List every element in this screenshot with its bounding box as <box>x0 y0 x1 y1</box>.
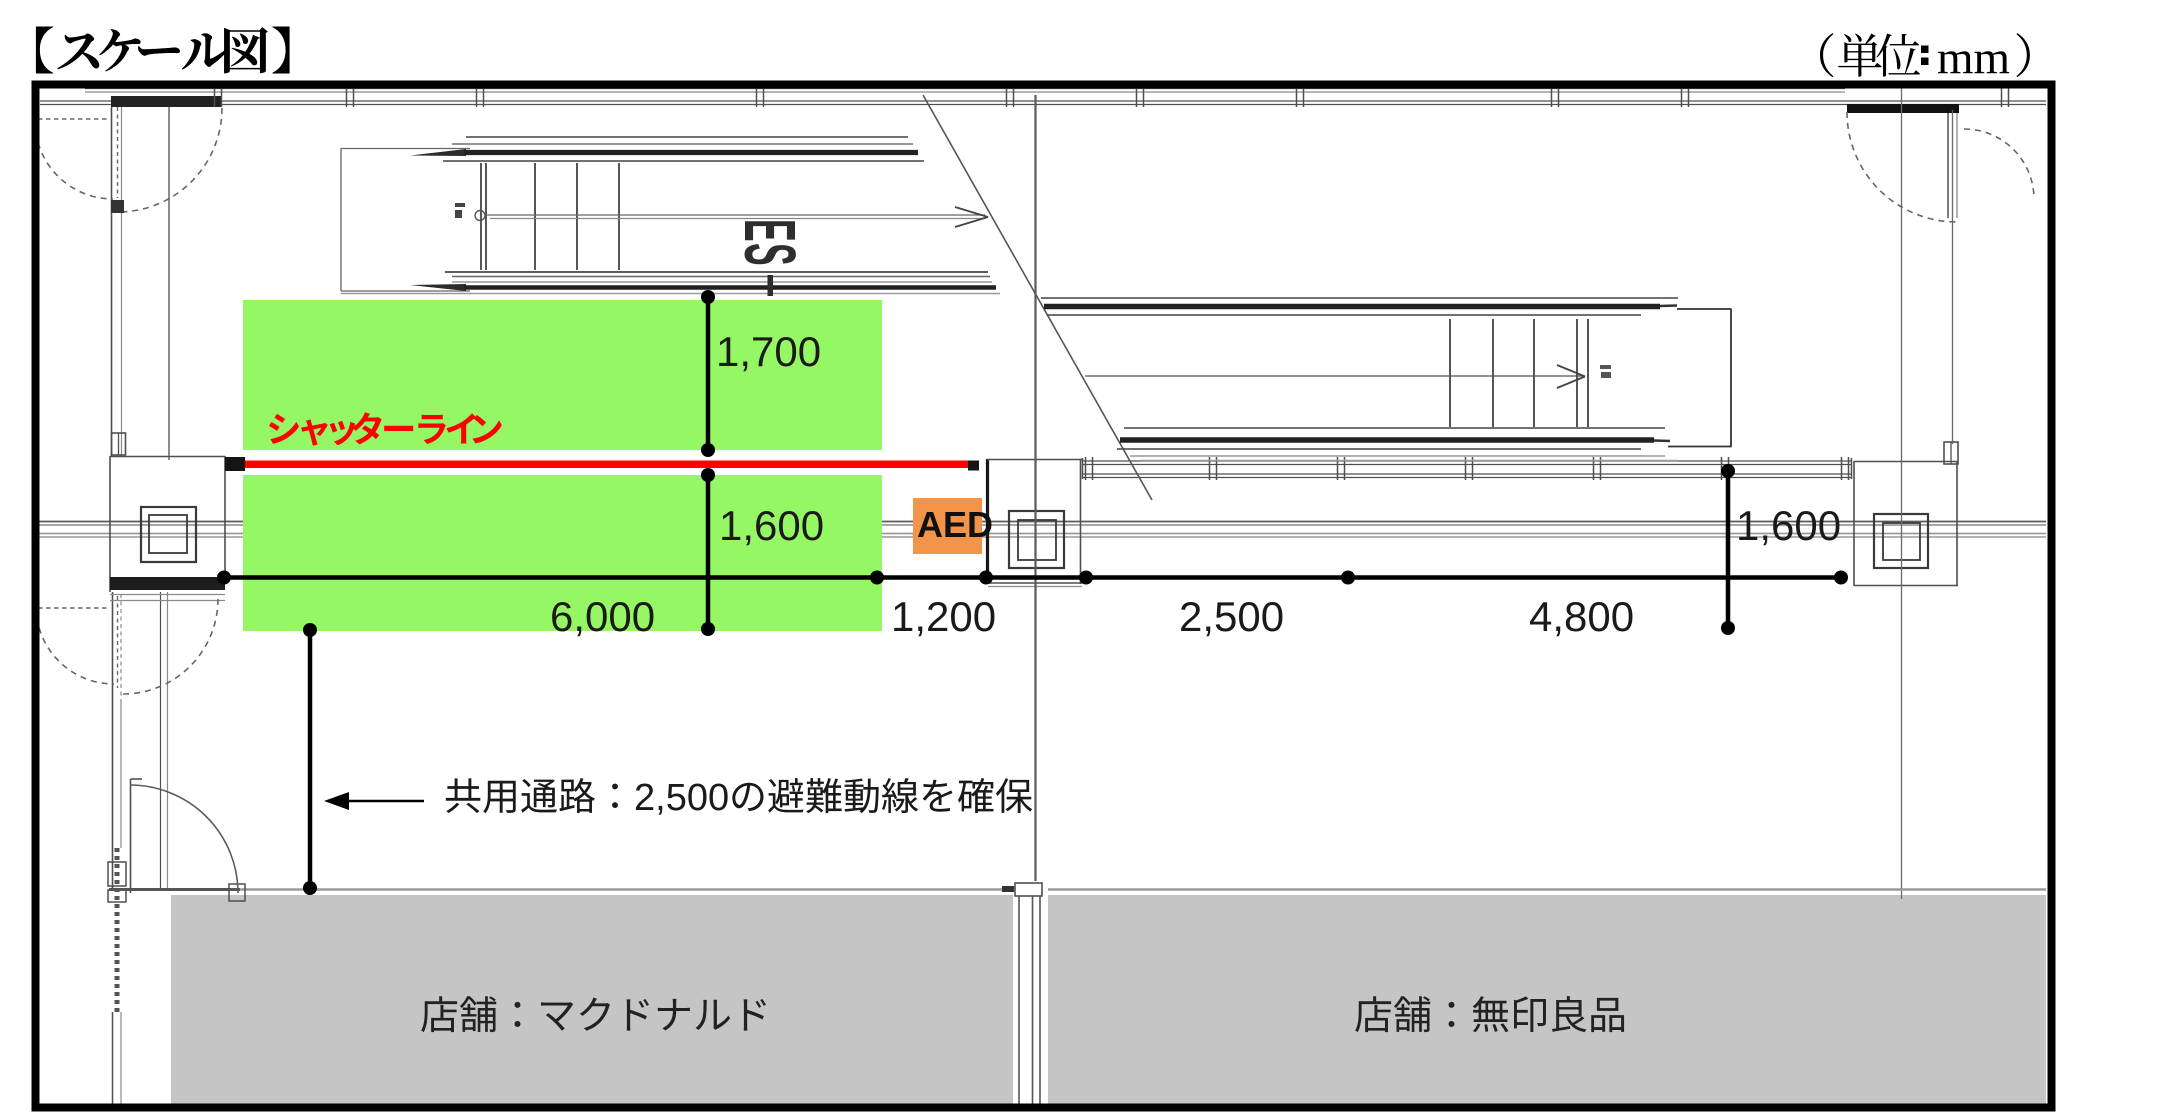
svg-text:1,600: 1,600 <box>719 502 824 549</box>
svg-text:ES: ES <box>730 219 811 267</box>
svg-text:2,500: 2,500 <box>1179 593 1284 640</box>
svg-text:mm: mm <box>1937 32 2010 84</box>
svg-text:AED: AED <box>917 504 993 545</box>
svg-text:1,600: 1,600 <box>1736 502 1841 549</box>
svg-text:1,200: 1,200 <box>891 593 996 640</box>
svg-text:1,700: 1,700 <box>716 328 821 375</box>
svg-text:2,500: 2,500 <box>634 777 729 819</box>
svg-text:4,800: 4,800 <box>1529 593 1634 640</box>
svg-text:6,000: 6,000 <box>550 593 655 640</box>
